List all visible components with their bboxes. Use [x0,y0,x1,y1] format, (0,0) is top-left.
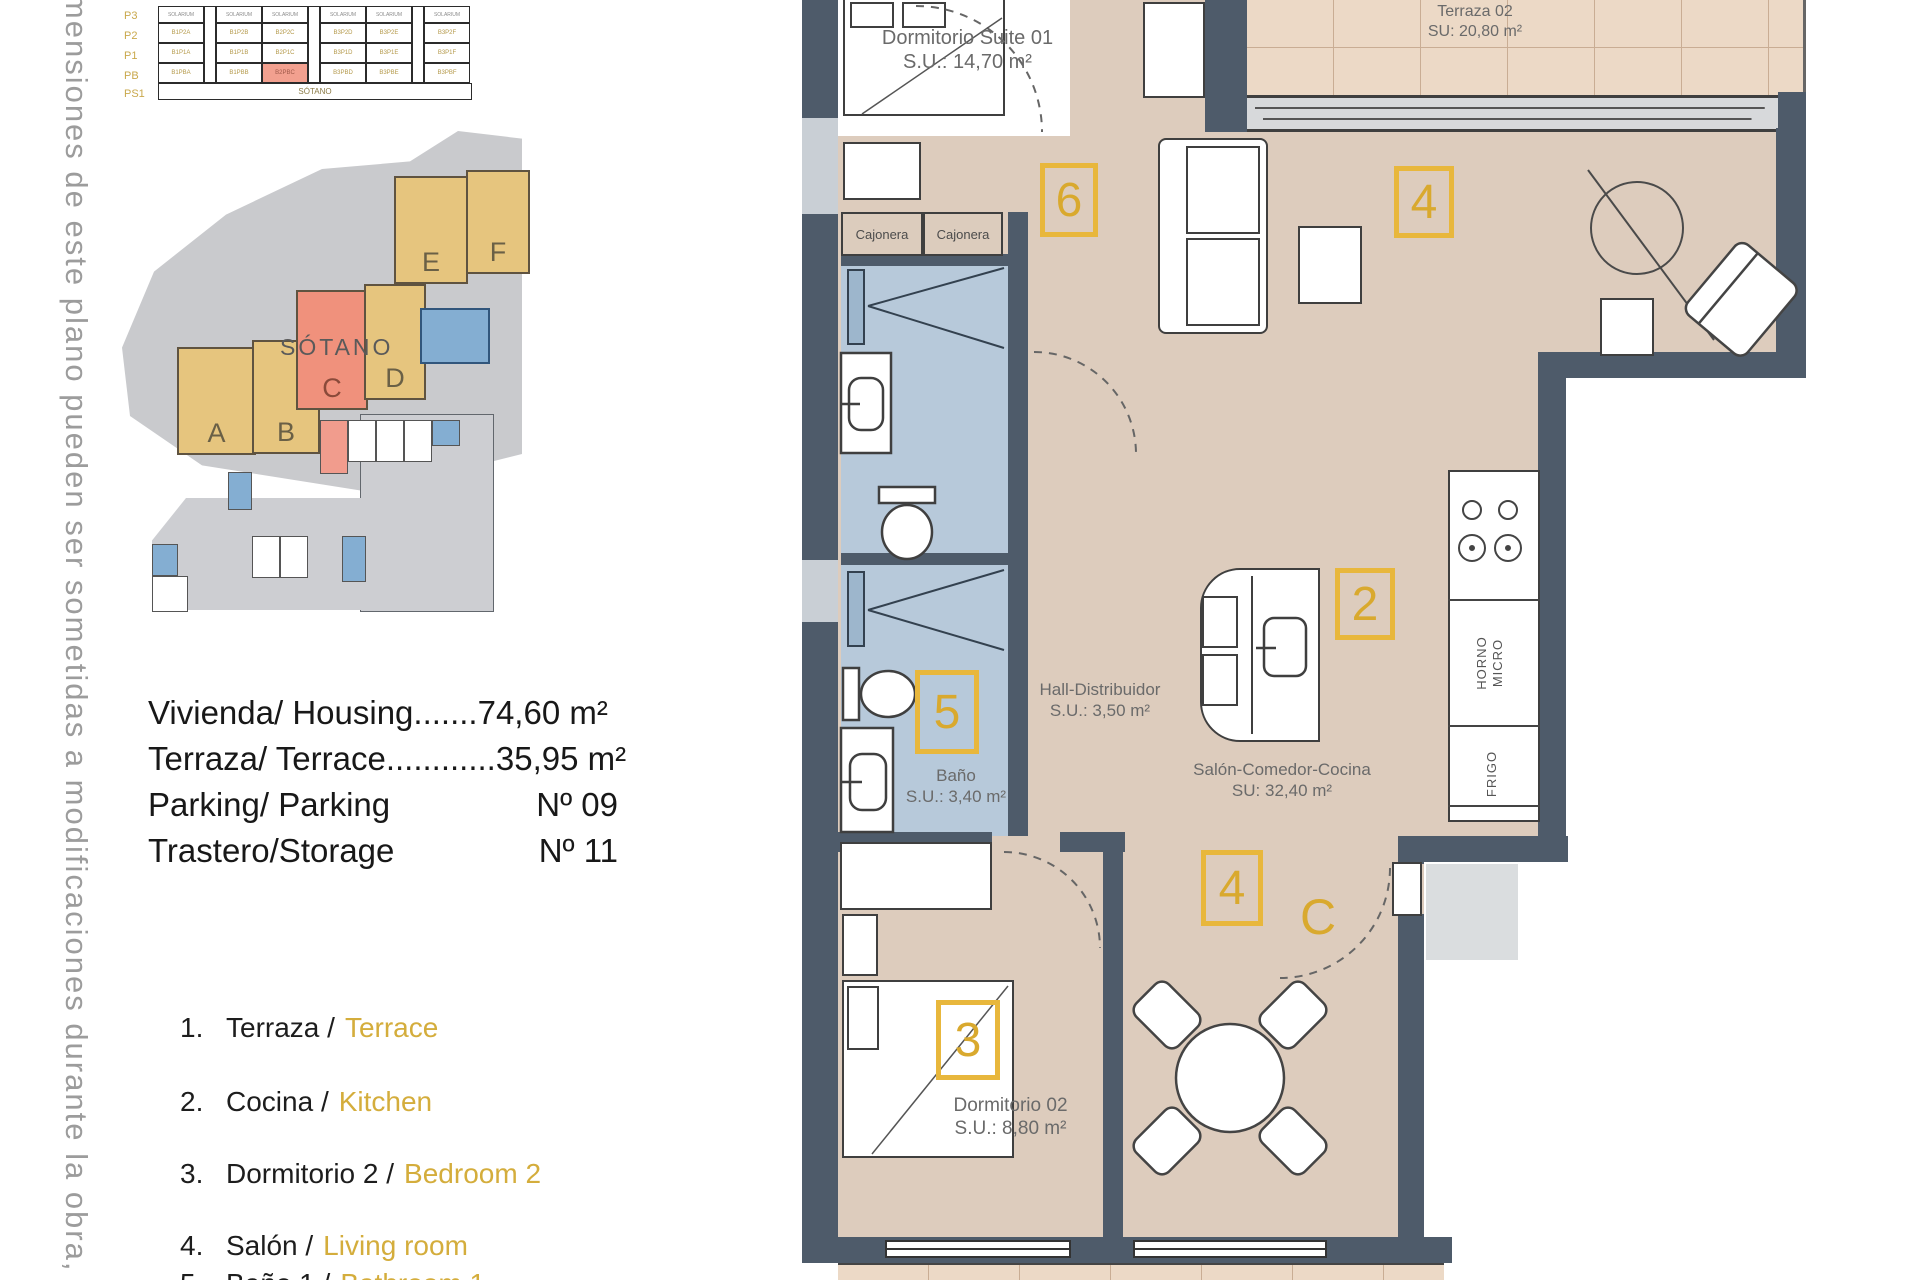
summary-row: Vivienda/ Housing.......74,60 m² [148,690,618,736]
legend-en: Bedroom 2 [404,1158,541,1189]
room-name: Dormitorio 02 [898,1094,1123,1117]
unit-cell: B3PBD [320,63,366,83]
dorm2-label: Dormitorio 02 S.U.: 8,80 m² [898,1094,1123,1140]
unit-cell: B3PBE [366,63,412,83]
entrance-door-leaf [1392,862,1422,916]
island-stool [1202,654,1238,706]
cajonera-cabinet: Cajonera [923,212,1003,256]
hall-label: Hall-Distribuidor S.U.: 3,50 m² [1014,680,1186,721]
sofa-cushion [1186,146,1260,234]
shower-zone [841,565,1008,653]
building-elevation-diagram: P3 P2 P1 PB PS1 SOLARIUM SOLARIUM SOLARI… [124,6,472,103]
solarium-cell: SOLARIUM [158,6,204,23]
stair-tower [204,6,216,83]
window-bottom-2 [1133,1240,1327,1258]
legend-item-salon: 4.Salón /Living room [180,1230,468,1262]
parking-stall [280,536,308,578]
parking-stall-blue [432,420,460,446]
suite-pillow [902,2,946,28]
bano-label: Baño S.U.: 3,40 m² [886,766,1026,807]
bottom-terrace-tiles [838,1263,1444,1280]
wall-bedroom-top-right [1060,832,1125,852]
unit-cell: B1PBB [216,63,262,83]
appliance-name: FRIGO [1484,729,1500,819]
floor-label: P1 [124,46,150,66]
wall-bath-right [1008,212,1028,836]
unit-cell: B1PBA [158,63,204,83]
unit-cell: B3P1F [424,43,470,63]
basement-plan: SÓTANO [132,322,492,622]
bedroom-nightstand [842,914,878,976]
summary-row: Parking/ ParkingNº 09 [148,782,618,828]
wall-bedroom-salon [1103,852,1123,1240]
unit-cell: B1P2B [216,23,262,43]
basement-title: SÓTANO [280,334,393,361]
summary-row: Terraza/ Terrace............35,95 m² [148,736,618,782]
parking-stall [152,576,188,612]
legend-item-bano: 5.Baño 1 /Bathroom 1 [180,1268,485,1280]
summary-value: 74,60 m² [478,690,608,736]
coffee-table [1298,226,1362,304]
window-bottom-1 [885,1240,1071,1258]
room-area: SU: 32,40 m² [1172,781,1392,802]
floor-label: P3 [124,6,150,26]
side-table [1600,298,1654,356]
summary-label: Terraza/ Terrace [148,736,386,782]
island-stool [1202,596,1238,648]
side-disclaimer-text: imensiones de este plano pueden ser some… [58,0,94,1280]
summary-dots: ............ [386,736,496,782]
parking-stall [376,420,404,462]
legend-number: 1. [180,1012,226,1044]
wall-bottom-right-h [1420,836,1568,862]
summary-dots: ....... [413,690,477,736]
legend-number: 3. [180,1158,226,1190]
floor-label: PS1 [124,86,150,103]
floor-label: PB [124,66,150,86]
unit-cell: B3PBF [424,63,470,83]
room-area: S.U.: 3,40 m² [886,787,1026,808]
oven-label: HORNO MICRO [1474,613,1514,713]
parking-stall-highlighted [320,420,348,474]
unit-cell: B1P2A [158,23,204,43]
zone-box-3-bedroom: 3 [936,1000,1000,1080]
bathroom2-floor [841,352,1008,556]
terraza-label: Terraza 02 SU: 20,80 m² [1380,2,1570,41]
parking-stall-blue [228,472,252,510]
stair-tower [308,6,320,83]
elevation-grid: SOLARIUM SOLARIUM SOLARIUM SOLARIUM SOLA… [158,6,472,83]
site-block-f: F [466,170,530,274]
room-area: S.U.: 14,70 m² [855,50,1080,74]
wall-right-mid [1538,378,1566,862]
unit-cell: B3P2E [366,23,412,43]
wall-jamb [1778,92,1806,132]
window-left-1 [802,118,838,214]
bedroom-wardrobe [840,842,992,910]
summary-value: Nº 09 [536,782,618,828]
legend-number: 2. [180,1086,226,1118]
unit-cell: B3P2D [320,23,366,43]
summary-value: Nº 11 [539,828,618,874]
zone-box-5-bath: 5 [915,670,979,754]
parking-stall-blue [342,536,366,582]
unit-cell: B3P2F [424,23,470,43]
appliance-name: MICRO [1490,613,1506,713]
wall-entrance-top [1398,836,1424,864]
wardrobe-shower-zone [841,266,1008,352]
unit-cell: B2P1C [262,43,308,63]
terrace-edge [1803,0,1806,95]
stair-tower [412,6,424,83]
room-area: SU: 20,80 m² [1380,22,1570,42]
summary-label: Vivienda/ Housing [148,690,413,736]
solarium-cell: SOLARIUM [216,6,262,23]
appliance-name: HORNO [1474,613,1490,713]
solarium-cell: SOLARIUM [320,6,366,23]
room-area: S.U.: 8,80 m² [898,1117,1123,1140]
zone-box-4-living: 4 [1394,166,1454,238]
solarium-cell: SOLARIUM [366,6,412,23]
legend-item-dormitorio2: 3.Dormitorio 2 /Bedroom 2 [180,1158,541,1190]
suite-pillow [850,2,894,28]
wall-pillar-top [1205,0,1247,132]
fridge-label: FRIGO [1484,729,1504,819]
unit-cell-highlighted: B2PBC [262,63,308,83]
unit-cell: B3P1E [366,43,412,63]
zone-box-4-dining: 4 [1201,850,1263,926]
suite-nightstand [843,142,921,200]
wall-step [1538,352,1806,378]
room-name: Terraza 02 [1380,2,1570,22]
wall-stub-2 [841,553,1008,565]
unit-cell: B1P1B [216,43,262,63]
suite-label: Dormitorio Suite 01 S.U.: 14,70 m² [855,26,1080,75]
legend-number: 5. [180,1268,226,1280]
wall-entrance-bottom [1398,914,1424,1240]
legend-item-terraza: 1.Terraza /Terrace [180,1012,438,1044]
zone-box-6: 6 [1040,163,1098,237]
parking-stall [252,536,280,578]
cajonera-cabinet: Cajonera [841,212,923,256]
sotano-bar: SÓTANO [158,83,472,100]
summary-label: Parking/ Parking [148,782,390,828]
unit-cell: B3P1D [320,43,366,63]
unit-cell: B1P1A [158,43,204,63]
area-summary: Vivienda/ Housing.......74,60 m² Terraza… [148,690,618,874]
room-name: Hall-Distribuidor [1014,680,1186,701]
legend-es: Terraza / [226,1012,335,1043]
room-area: S.U.: 3,50 m² [1014,701,1186,722]
salon-label: Salón-Comedor-Cocina SU: 32,40 m² [1172,760,1392,801]
legend-en: Bathroom 1 [340,1268,485,1280]
legend-item-cocina: 2.Cocina /Kitchen [180,1086,432,1118]
entrance-landing [1426,864,1518,960]
room-name: Baño [886,766,1026,787]
legend-en: Living room [323,1230,468,1261]
summary-row: Trastero/StorageNº 11 [148,828,618,874]
solarium-cell: SOLARIUM [424,6,470,23]
room-name: Dormitorio Suite 01 [855,26,1080,50]
entrance-letter-c: C [1300,888,1336,946]
floor-plan-page: imensiones de este plano pueden ser some… [0,0,1920,1280]
parking-stall [348,420,376,462]
basement-shape [152,498,492,610]
wall-right-top [1776,128,1806,368]
floor-label: P2 [124,26,150,46]
summary-value: 35,95 m² [496,736,626,782]
room-name: Salón-Comedor-Cocina [1172,760,1392,781]
unit-cell: B2P2C [262,23,308,43]
site-block-e: E [394,176,468,284]
elevation-floor-labels: P3 P2 P1 PB PS1 [124,6,150,103]
parking-stall [404,420,432,462]
legend-es: Salón / [226,1230,313,1261]
legend-en: Terrace [345,1012,438,1043]
legend-number: 4. [180,1230,226,1262]
zone-box-2-kitchen: 2 [1335,568,1395,640]
suite-wardrobe [1143,2,1205,98]
sofa-cushion [1186,238,1260,326]
legend-es: Dormitorio 2 / [226,1158,394,1189]
terrace-sliding-door [1247,95,1778,132]
summary-label: Trastero/Storage [148,828,394,874]
legend-en: Kitchen [339,1086,432,1117]
legend-es: Cocina / [226,1086,329,1117]
window-left-2 [802,560,838,622]
bedroom-pillow [847,986,879,1050]
solarium-cell: SOLARIUM [262,6,308,23]
parking-stall-blue [152,544,178,576]
legend-es: Baño 1 / [226,1268,330,1280]
